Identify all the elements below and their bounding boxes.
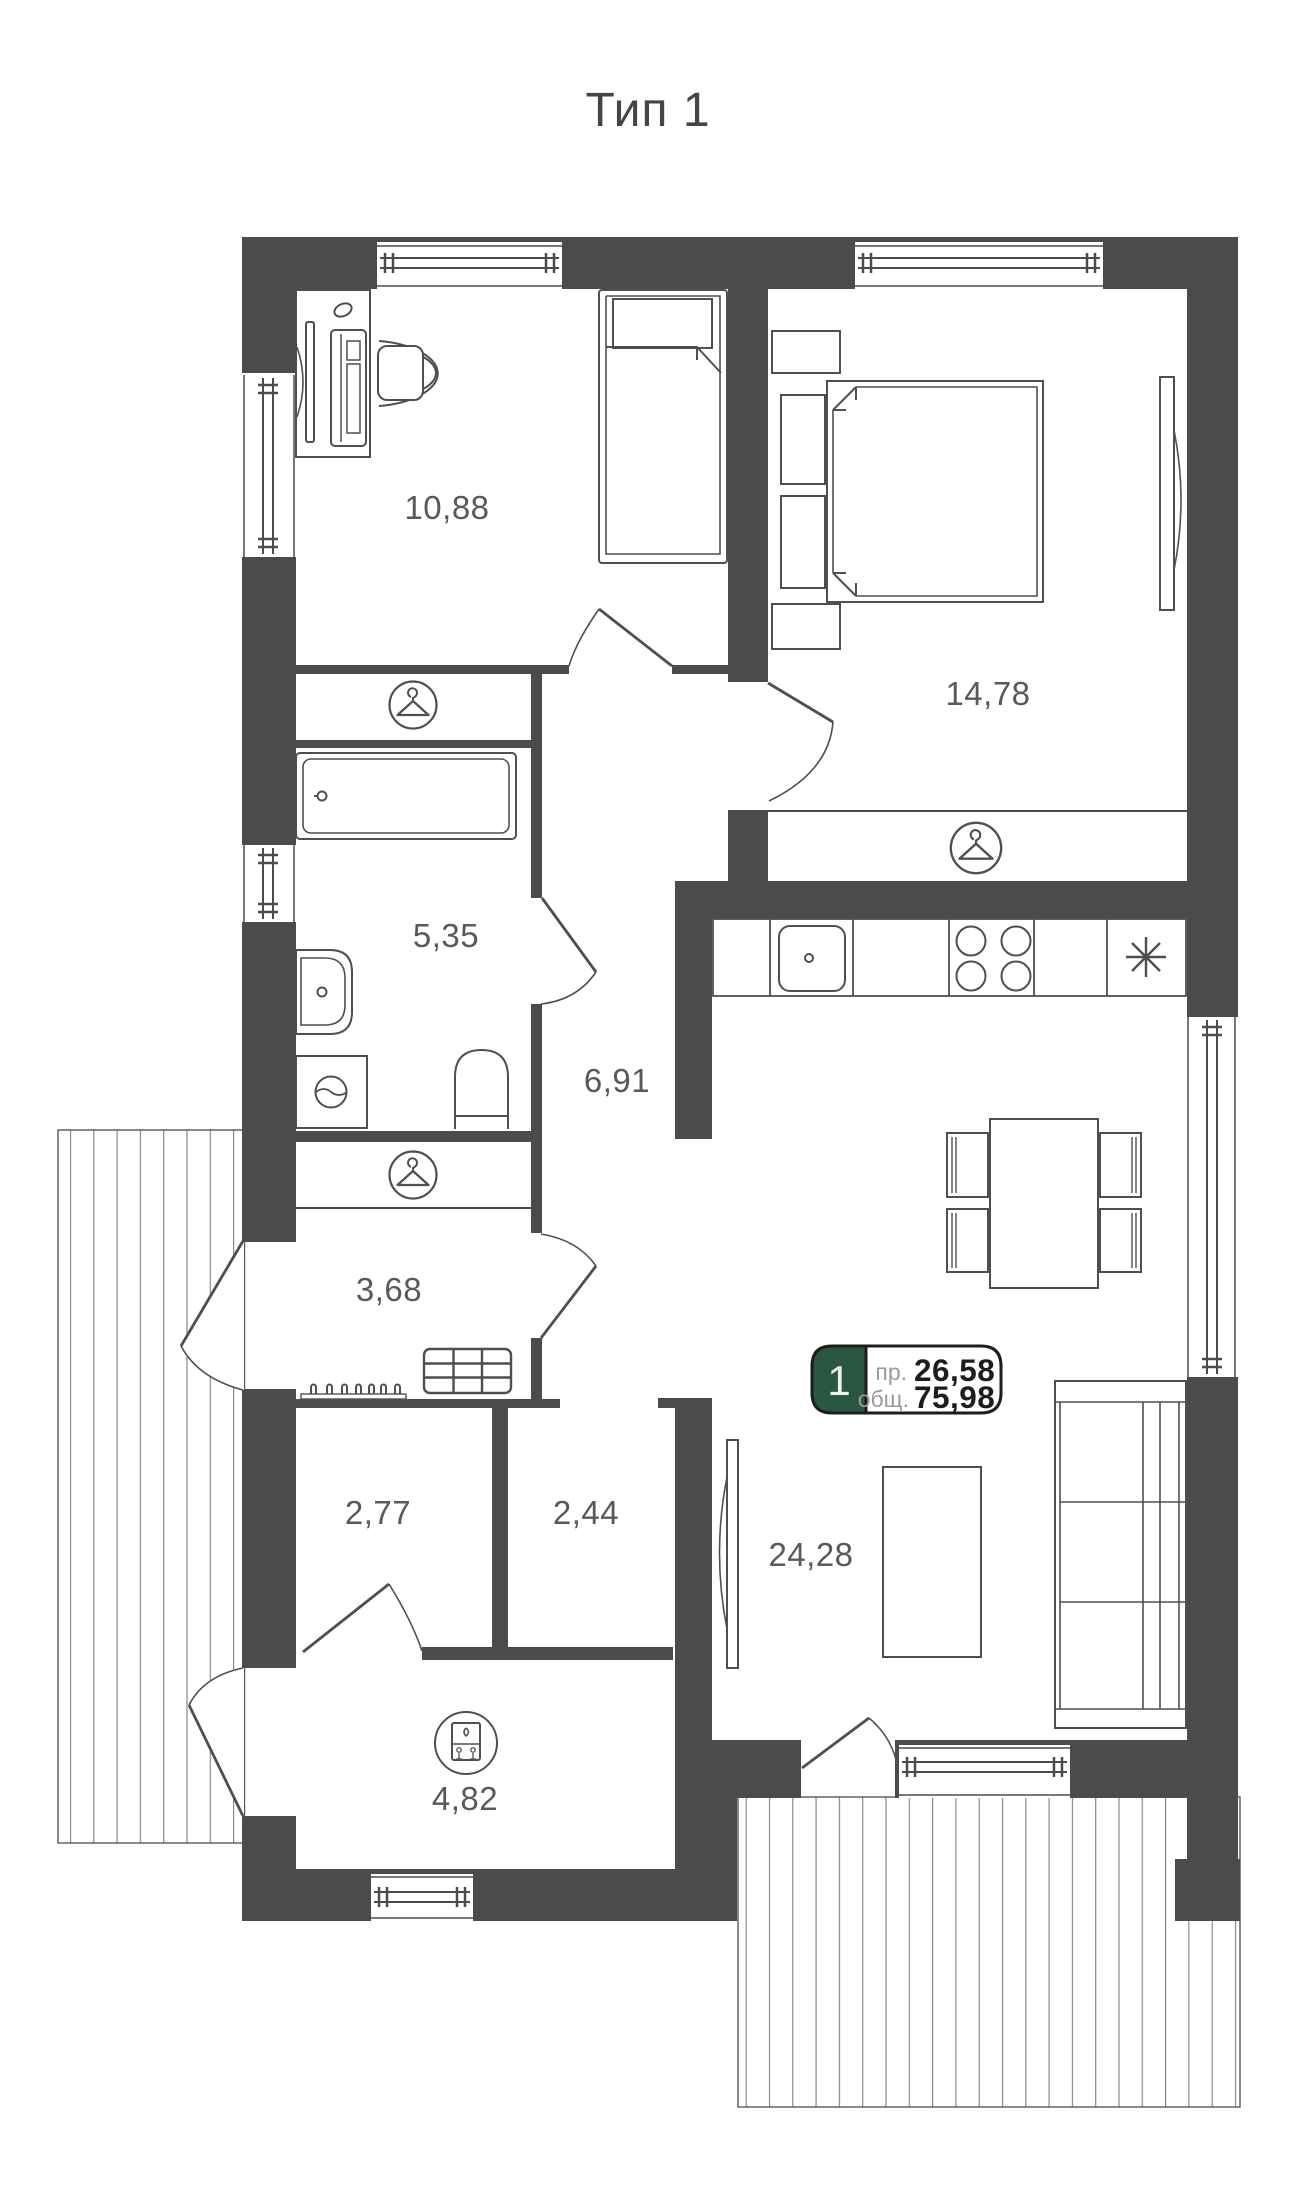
- svg-text:пр.: пр.: [875, 1359, 907, 1385]
- svg-text:10,88: 10,88: [404, 489, 489, 526]
- svg-text:4,82: 4,82: [432, 1780, 498, 1817]
- svg-text:2,77: 2,77: [345, 1494, 411, 1531]
- svg-text:14,78: 14,78: [945, 675, 1030, 712]
- svg-text:1: 1: [827, 1357, 850, 1404]
- svg-text:5,35: 5,35: [413, 917, 479, 954]
- svg-text:75,98: 75,98: [914, 1379, 995, 1415]
- svg-text:общ.: общ.: [858, 1386, 909, 1412]
- svg-text:6,91: 6,91: [584, 1062, 650, 1099]
- svg-text:Тип 1: Тип 1: [585, 84, 710, 137]
- svg-text:3,68: 3,68: [356, 1271, 422, 1308]
- svg-text:24,28: 24,28: [768, 1536, 853, 1573]
- svg-text:2,44: 2,44: [553, 1494, 619, 1531]
